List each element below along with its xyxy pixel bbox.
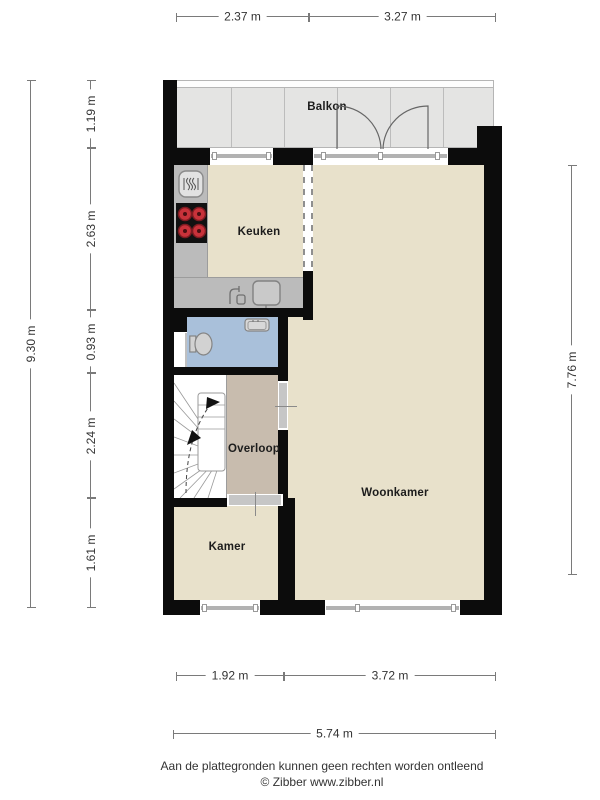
wall-top-c xyxy=(448,148,502,165)
dim-left-total-label: 9.30 m xyxy=(23,320,39,369)
wall-bathroom-left-stub xyxy=(174,317,187,332)
wall-bottom-b xyxy=(260,600,325,615)
dim-bottom-left-label: 1.92 m xyxy=(206,668,255,682)
window-mullion xyxy=(202,604,207,612)
dim-right-total-label: 7.76 m xyxy=(564,346,580,395)
bathroom-door xyxy=(174,332,187,368)
dim-left-total: 9.30 m xyxy=(30,80,31,608)
window-mullion xyxy=(266,152,271,160)
room-label-overloop: Overloop xyxy=(228,443,280,455)
window-glass xyxy=(211,154,272,158)
wall-bathroom-bottom xyxy=(163,367,287,375)
wall-bottom-c xyxy=(460,600,502,615)
overloop-floor xyxy=(227,375,280,498)
dim-bottom-left: 1.92 m xyxy=(176,675,284,676)
dim-left-seg-badkamer: 0.93 m xyxy=(90,310,91,373)
bathroom-door-leaf xyxy=(185,333,187,367)
dim-bottom-total: 5.74 m xyxy=(173,733,496,734)
window-mullion xyxy=(212,152,217,160)
dim-left-seg-keuken: 2.63 m xyxy=(90,148,91,310)
window-glass xyxy=(201,606,259,610)
balcony-railing-post xyxy=(231,88,232,147)
stairs-icon xyxy=(174,375,227,498)
open-passage-keuken-woonkamer xyxy=(303,165,313,271)
dim-bottom-total-label: 5.74 m xyxy=(310,726,359,740)
window-mullion xyxy=(321,152,326,160)
dim-top-left-label: 2.37 m xyxy=(218,9,267,23)
door-tick xyxy=(255,492,256,516)
dim-left-seg3-label: 0.93 m xyxy=(83,317,99,366)
door-tick xyxy=(275,406,297,407)
dim-bottom-right: 3.72 m xyxy=(284,675,496,676)
footer-credit: © Zibber www.zibber.nl xyxy=(22,774,600,790)
wall-kamer-top xyxy=(163,498,227,507)
window-mullion xyxy=(378,152,383,160)
window-mullion xyxy=(253,604,258,612)
dim-top-left: 2.37 m xyxy=(176,16,309,17)
dim-top-right: 3.27 m xyxy=(309,16,496,17)
window-keuken xyxy=(210,149,273,163)
dim-bottom-right-label: 3.72 m xyxy=(366,668,415,682)
wall-left xyxy=(163,148,174,615)
dim-top-right-label: 3.27 m xyxy=(378,9,427,23)
cooktop-icon xyxy=(176,203,207,243)
dim-left-seg1-label: 1.19 m xyxy=(83,90,99,139)
passage-dash-line xyxy=(311,165,313,271)
window-glass xyxy=(326,606,459,610)
dim-left-seg2-label: 2.63 m xyxy=(83,205,99,254)
heater-icon xyxy=(178,170,204,198)
dim-left-seg-balkon: 1.19 m xyxy=(90,80,91,148)
balcony-french-doors-icon xyxy=(313,103,448,150)
balcony-railing-top xyxy=(175,81,493,88)
dim-right-total: 7.76 m xyxy=(571,165,572,575)
kitchen-sink-icon xyxy=(252,280,282,308)
room-label-kamer: Kamer xyxy=(209,541,246,553)
dim-left-seg4-label: 2.24 m xyxy=(83,411,99,460)
window-mullion xyxy=(355,604,360,612)
window-woonkamer-bottom xyxy=(325,601,460,614)
floorplan-canvas: 2.37 m 3.27 m 9.30 m 1.19 m 2.63 m 0.93 … xyxy=(0,0,600,800)
faucet-icon xyxy=(226,283,248,306)
wall-bathroom-top xyxy=(163,308,313,317)
wall-balcony-left-post xyxy=(163,80,177,148)
room-label-keuken: Keuken xyxy=(238,226,281,238)
window-kamer xyxy=(200,601,260,614)
door-overloop-kamer xyxy=(227,494,283,506)
wall-balcony-right-post xyxy=(477,126,502,150)
footer-disclaimer: Aan de plattegronden kunnen geen rechten… xyxy=(22,758,600,774)
window-mullion xyxy=(435,152,440,160)
passage-dash-line xyxy=(303,165,305,271)
wall-top-b xyxy=(273,148,313,165)
dim-left-seg-trap: 2.24 m xyxy=(90,373,91,498)
dim-left-seg5-label: 1.61 m xyxy=(83,529,99,578)
balcony-railing-post xyxy=(284,88,285,147)
wall-kamer-woonkamer xyxy=(278,498,295,600)
wall-right xyxy=(484,148,502,615)
window-woonkamer-top xyxy=(313,149,448,163)
room-label-woonkamer: Woonkamer xyxy=(361,487,428,499)
dim-left-seg-kamer: 1.61 m xyxy=(90,498,91,608)
wall-overloop-right-b xyxy=(278,430,288,498)
bathroom-sink-icon xyxy=(244,318,270,332)
wall-top-a xyxy=(163,148,210,165)
wall-bottom-a xyxy=(163,600,200,615)
door-overloop-woonkamer xyxy=(278,381,288,430)
window-mullion xyxy=(451,604,456,612)
staircase xyxy=(174,375,227,498)
toilet-icon xyxy=(189,331,213,357)
